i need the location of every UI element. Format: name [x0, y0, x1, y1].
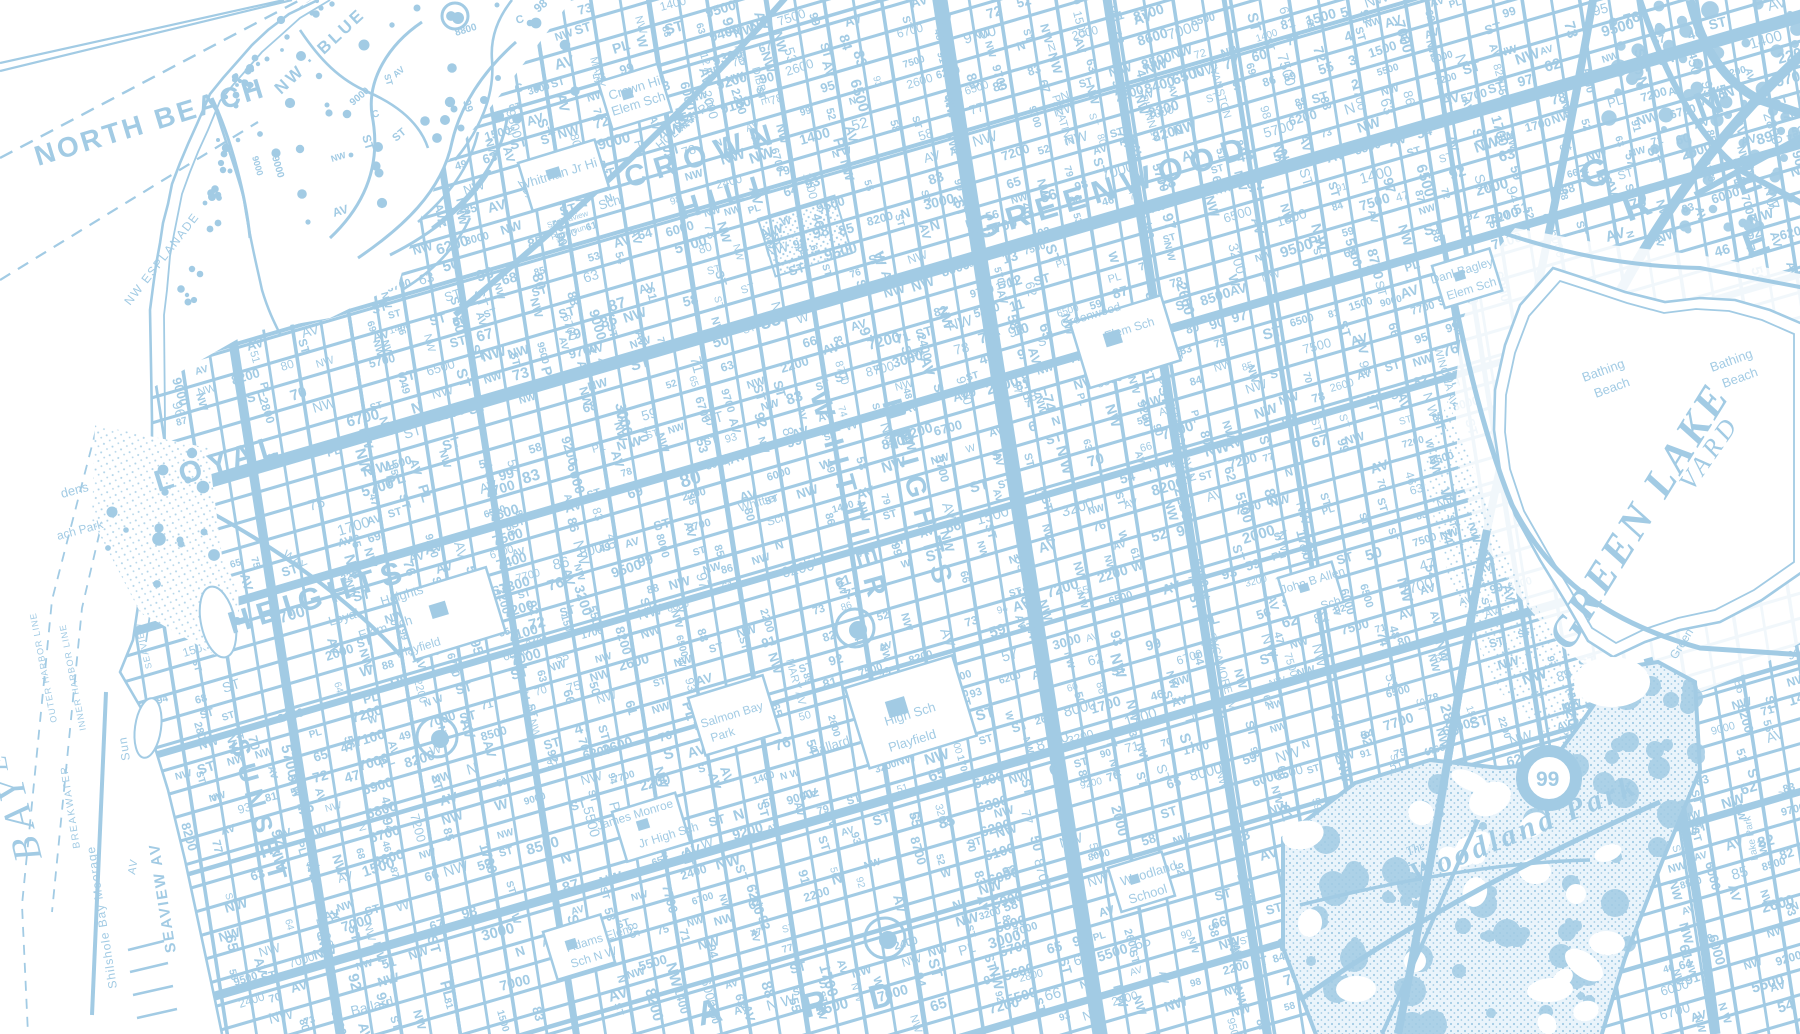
svg-text:99: 99: [1536, 768, 1559, 791]
